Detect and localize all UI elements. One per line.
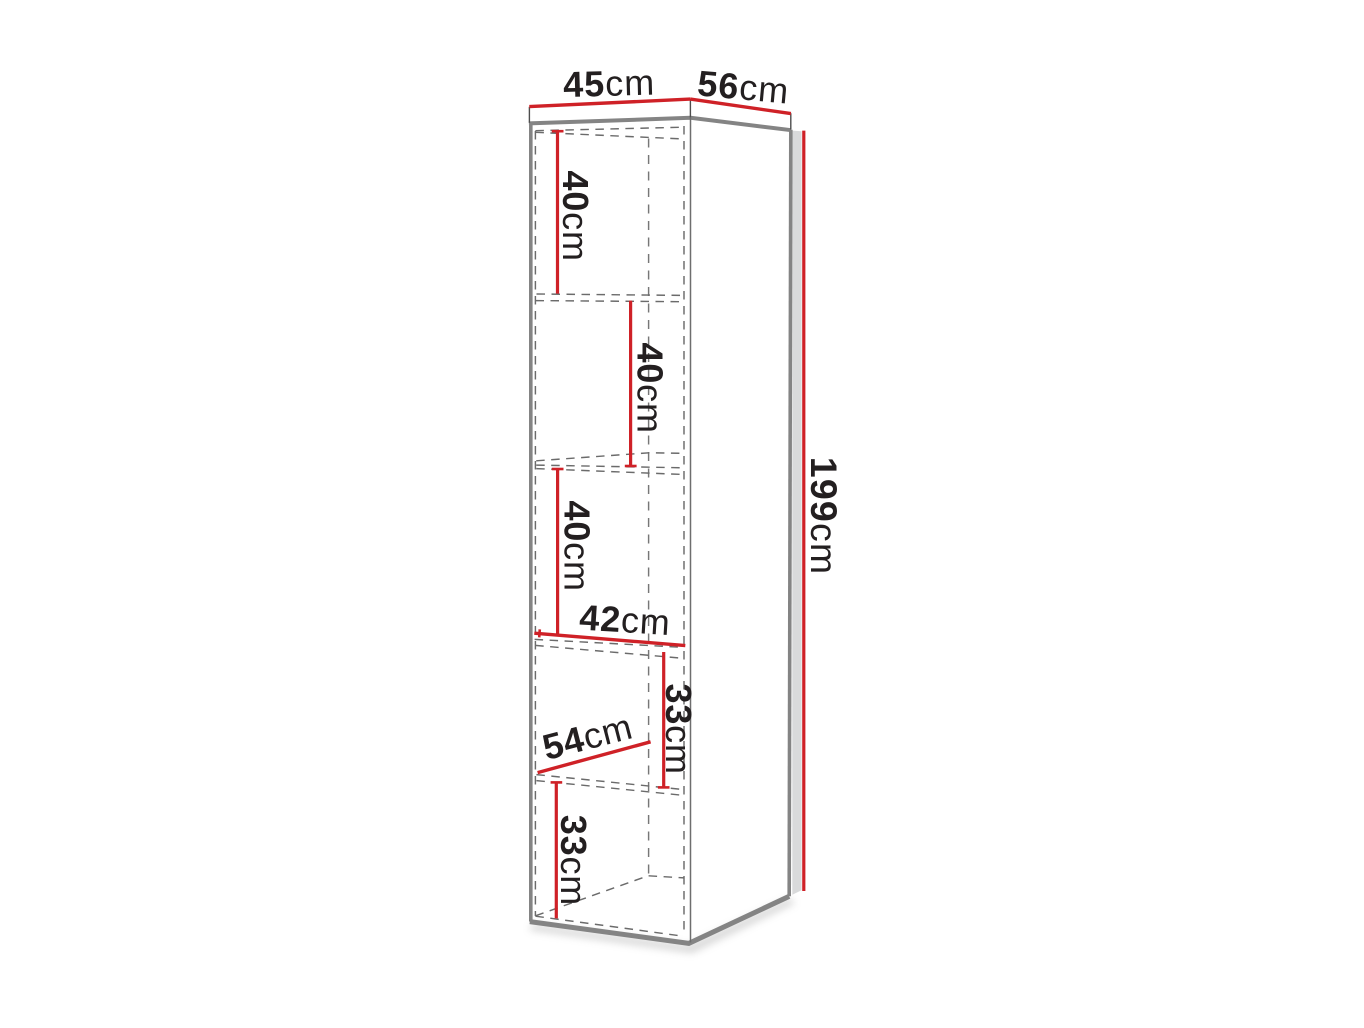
svg-text:42cm: 42cm [578,597,672,643]
svg-text:33cm: 33cm [658,684,699,775]
svg-text:56cm: 56cm [696,62,791,111]
svg-text:40cm: 40cm [556,501,597,592]
svg-text:40cm: 40cm [555,171,596,262]
svg-text:45cm: 45cm [563,62,656,105]
svg-text:40cm: 40cm [629,343,670,434]
svg-text:199cm: 199cm [803,457,845,576]
svg-text:33cm: 33cm [553,815,594,906]
